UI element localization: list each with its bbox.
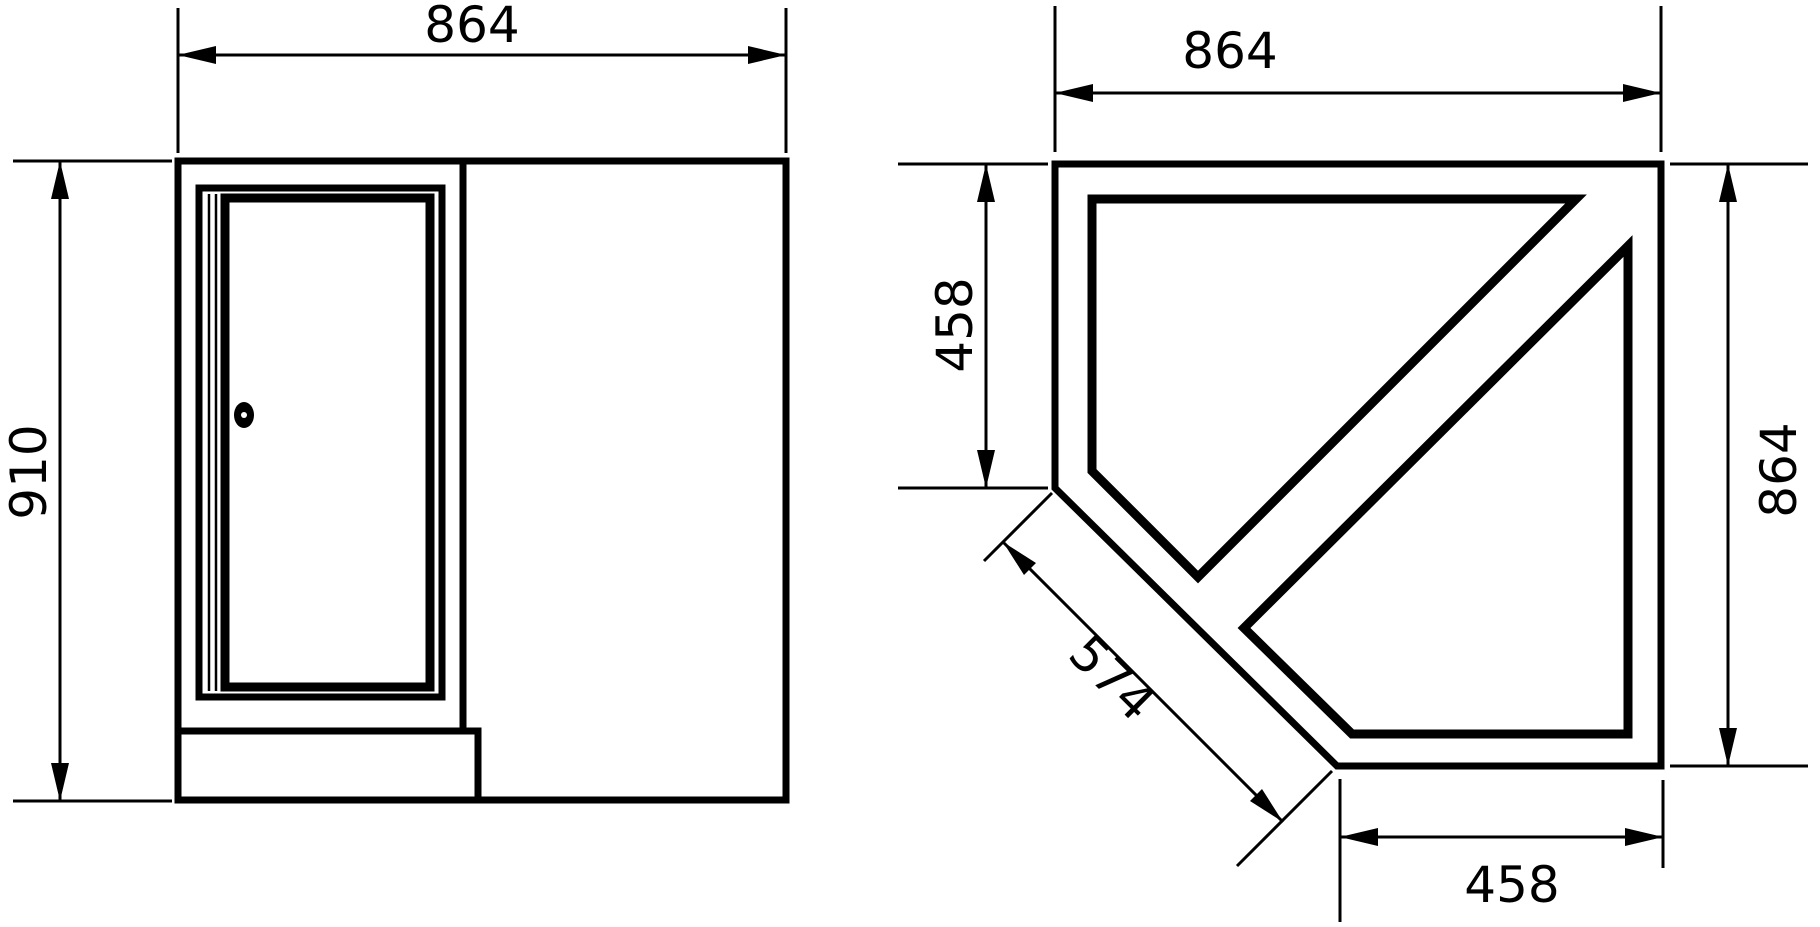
plan-diagonal-label: 574 (1058, 624, 1166, 732)
front-plinth-step (181, 731, 478, 797)
front-width-label: 864 (424, 0, 519, 54)
plan-bottom-side-label: 458 (1464, 856, 1559, 914)
front-cabinet-outline (178, 161, 786, 800)
arrowhead-right (748, 46, 786, 64)
plan-width-label: 864 (1182, 22, 1277, 80)
cabinet-dimension-drawing: 864 910 864 (0, 0, 1820, 927)
plan-diagonal-dimension: 574 (984, 493, 1332, 866)
plan-width-dimension: 864 (1055, 6, 1661, 152)
arrowhead-right (1625, 828, 1663, 846)
front-height-label: 910 (0, 424, 58, 519)
front-width-dimension: 864 (178, 0, 786, 153)
plan-depth-dimension: 864 (1670, 164, 1808, 766)
arrowhead-top (1719, 164, 1737, 202)
plan-depth-label: 864 (1750, 422, 1808, 517)
arrowhead-bottom (977, 450, 995, 488)
technical-drawing-canvas: 864 910 864 (0, 0, 1820, 927)
plan-bottom-side-dimension: 458 (1340, 779, 1663, 922)
arrowhead-left (1055, 84, 1093, 102)
front-view: 864 910 (0, 0, 786, 801)
arrowhead-right (1623, 84, 1661, 102)
plan-view: 864 864 458 458 (898, 6, 1808, 922)
extension-line (1237, 771, 1332, 866)
front-height-dimension: 910 (0, 161, 172, 801)
arrowhead-top (51, 161, 69, 199)
arrowhead-left (1340, 828, 1378, 846)
arrowhead-left (178, 46, 216, 64)
plan-lower-panel-outline (1244, 246, 1628, 734)
plan-left-side-label: 458 (926, 277, 984, 372)
plan-left-side-dimension: 458 (898, 164, 1048, 488)
arrowhead-top (977, 164, 995, 202)
plan-upper-panel-outline (1092, 199, 1576, 577)
extension-line (984, 493, 1052, 561)
door-inner-frame (225, 198, 430, 687)
door-outer-edge (199, 188, 442, 697)
arrowhead-bottom (1719, 728, 1737, 766)
arrowhead-bottom (51, 763, 69, 801)
door-lock-keyhole (241, 412, 247, 418)
